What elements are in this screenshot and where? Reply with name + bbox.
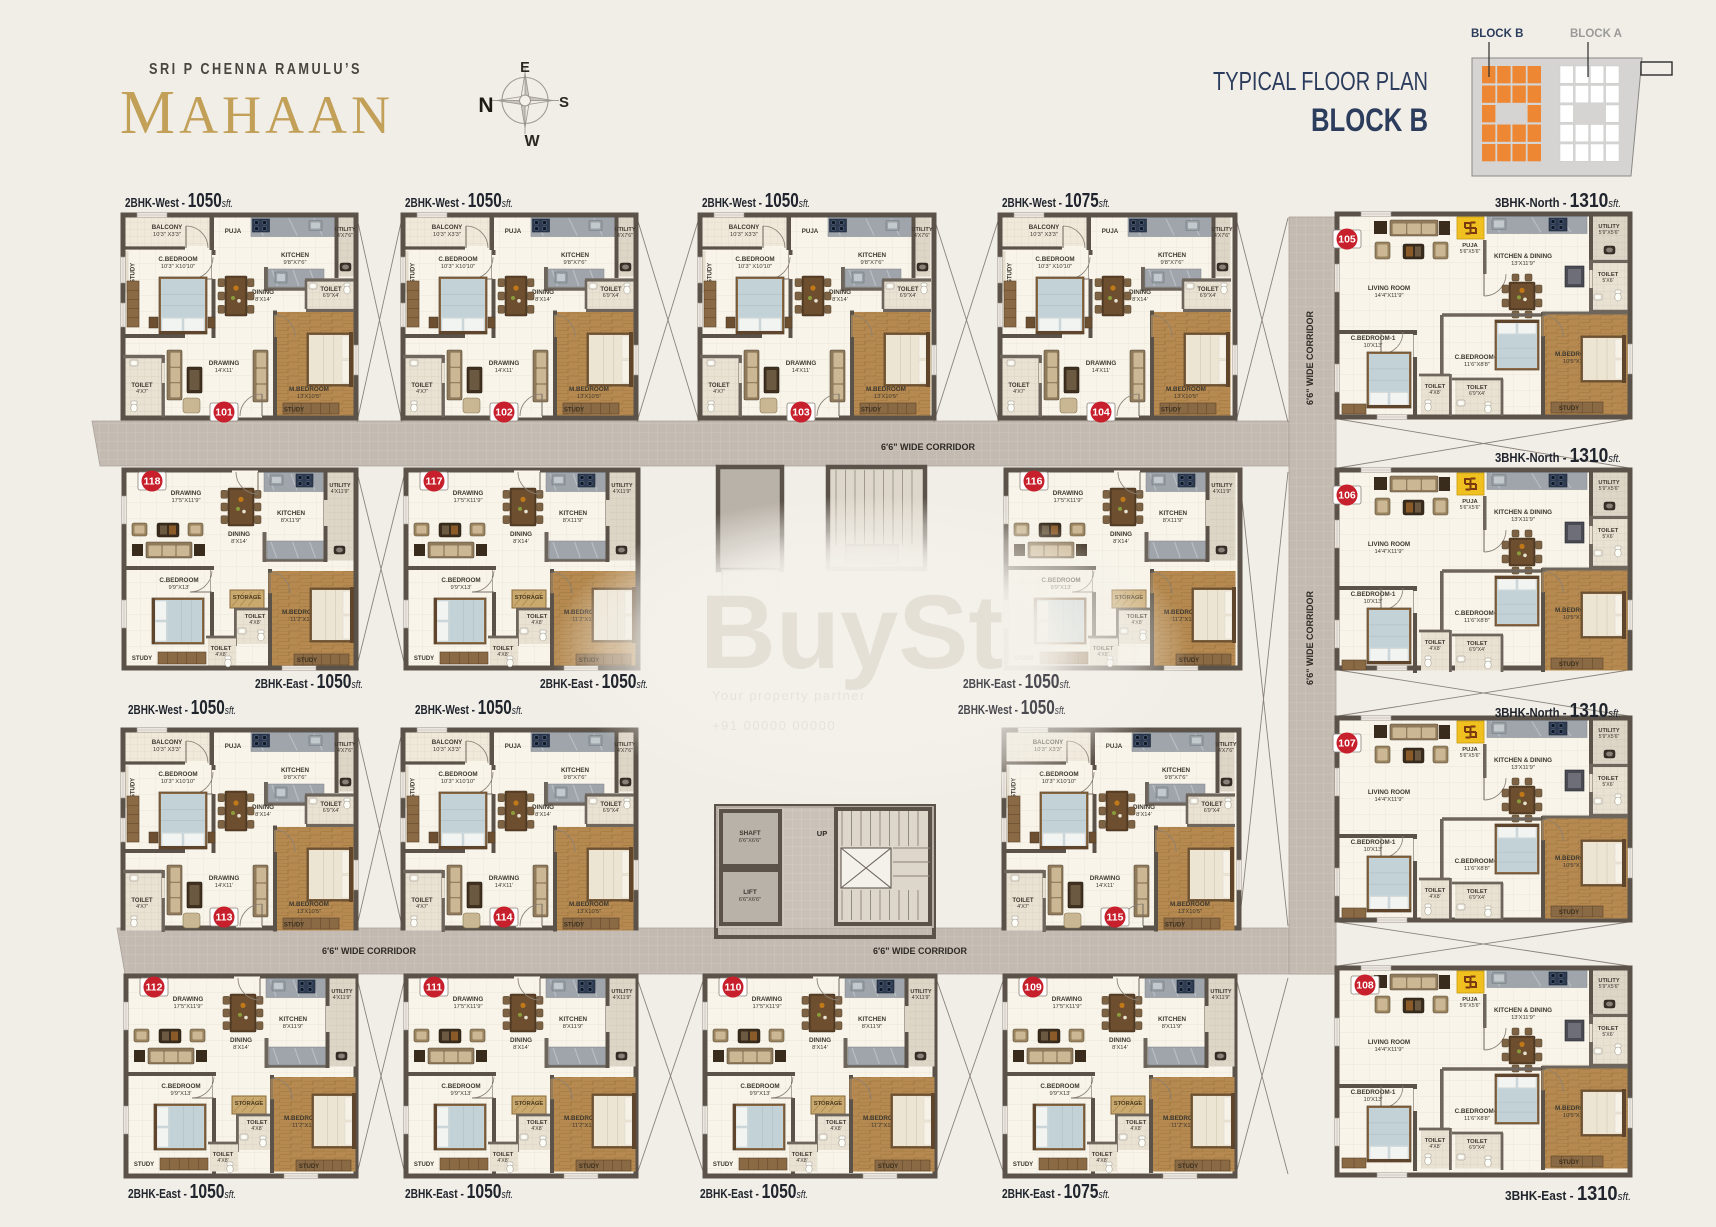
svg-text:4'X8': 4'X8' xyxy=(830,1126,841,1132)
svg-text:4'X7': 4'X7' xyxy=(136,389,148,395)
svg-text:6′6"X6′6": 6′6"X6′6" xyxy=(739,838,761,844)
svg-text:BLOCK B: BLOCK B xyxy=(1311,102,1428,138)
svg-text:8'X11'9": 8'X11'9" xyxy=(563,1024,584,1030)
svg-text:4'X7': 4'X7' xyxy=(1017,904,1029,910)
svg-text:C.BEDROOM-2: C.BEDROOM-2 xyxy=(1455,1108,1500,1115)
svg-text:STUDY: STUDY xyxy=(1559,662,1579,668)
svg-text:STUDY: STUDY xyxy=(131,263,137,283)
svg-text:DRAWING: DRAWING xyxy=(173,996,204,1003)
svg-text:109: 109 xyxy=(1024,982,1042,994)
svg-text:113: 113 xyxy=(216,912,233,924)
svg-text:KITCHEN & DINING: KITCHEN & DINING xyxy=(1494,1007,1552,1014)
svg-text:BALCONY: BALCONY xyxy=(432,224,463,231)
svg-text:C.BEDROOM-2: C.BEDROOM-2 xyxy=(1455,354,1500,361)
svg-text:PUJA: PUJA xyxy=(225,228,242,235)
svg-text:6'9"X4': 6'9"X4' xyxy=(323,293,340,299)
svg-text:S: S xyxy=(559,94,569,111)
svg-text:4'X8': 4'X8' xyxy=(1429,1144,1440,1150)
svg-text:KITCHEN: KITCHEN xyxy=(559,510,587,517)
svg-text:10'3" X3'3": 10'3" X3'3" xyxy=(433,232,461,238)
svg-text:SRI P CHENNA RAMULU’S: SRI P CHENNA RAMULU’S xyxy=(149,61,362,78)
svg-text:13'X11'9": 13'X11'9" xyxy=(1511,261,1535,267)
svg-text:14'X11': 14'X11' xyxy=(215,368,234,374)
svg-text:STUDY: STUDY xyxy=(131,778,137,798)
svg-text:DRAWING: DRAWING xyxy=(1090,875,1121,882)
svg-text:14'X11': 14'X11' xyxy=(215,883,234,889)
svg-text:9'9"X13': 9'9"X13' xyxy=(1049,1091,1070,1097)
svg-text:M.BEDROOM: M.BEDROOM xyxy=(866,386,906,393)
svg-text:4'X11'9": 4'X11'9" xyxy=(333,995,352,1001)
svg-text:STORAGE: STORAGE xyxy=(515,1101,544,1107)
svg-text:KITCHEN: KITCHEN xyxy=(281,767,309,774)
svg-text:C.BEDROOM-2: C.BEDROOM-2 xyxy=(1455,858,1500,865)
svg-text:DRAWING: DRAWING xyxy=(1052,996,1083,1003)
svg-text:PUJA: PUJA xyxy=(1102,228,1119,235)
svg-text:STUDY: STUDY xyxy=(411,263,417,283)
svg-text:KITCHEN: KITCHEN xyxy=(1159,510,1187,517)
svg-text:E: E xyxy=(520,60,530,76)
svg-text:STUDY: STUDY xyxy=(861,408,881,414)
svg-text:6'9"X4': 6'9"X4' xyxy=(603,808,620,814)
svg-text:4'X8': 4'X8' xyxy=(251,1126,262,1132)
svg-text:PUJA: PUJA xyxy=(505,743,522,750)
svg-text:117: 117 xyxy=(426,476,443,488)
svg-text:STUDY: STUDY xyxy=(284,408,304,414)
svg-text:C.BEDROOM-1: C.BEDROOM-1 xyxy=(1351,839,1396,846)
svg-text:8'X11'9": 8'X11'9" xyxy=(281,518,302,524)
svg-text:KITCHEN: KITCHEN xyxy=(561,767,589,774)
svg-text:C.BEDROOM-1: C.BEDROOM-1 xyxy=(1351,591,1396,598)
svg-text:STUDY: STUDY xyxy=(1559,1160,1579,1166)
svg-text:DRAWING: DRAWING xyxy=(453,996,484,1003)
svg-text:8'X11'9": 8'X11'9" xyxy=(283,1024,304,1030)
svg-text:4'X7'6": 4'X7'6" xyxy=(1218,748,1234,754)
svg-text:STUDY: STUDY xyxy=(132,656,152,662)
svg-text:MAHAAN: MAHAAN xyxy=(120,79,394,147)
svg-text:4'X8': 4'X8' xyxy=(1429,894,1440,900)
svg-text:SHAFT: SHAFT xyxy=(739,830,760,837)
svg-text:DRAWING: DRAWING xyxy=(1053,490,1084,497)
svg-text:8'X14': 8'X14' xyxy=(812,1045,828,1051)
svg-text:DINING: DINING xyxy=(252,289,274,296)
svg-text:5'X6': 5'X6' xyxy=(1602,1032,1613,1038)
svg-text:8'X14': 8'X14' xyxy=(1113,539,1129,545)
svg-text:DRAWING: DRAWING xyxy=(209,360,240,367)
svg-text:14'X11': 14'X11' xyxy=(1096,883,1115,889)
svg-text:4'X7'6": 4'X7'6" xyxy=(914,233,930,239)
svg-text:14'4"X11'9": 14'4"X11'9" xyxy=(1374,797,1403,803)
svg-text:115: 115 xyxy=(1107,912,1124,924)
svg-text:17'5"X11'9": 17'5"X11'9" xyxy=(453,1004,482,1010)
svg-text:8'X14': 8'X14' xyxy=(233,1045,249,1051)
svg-text:17'5"X11'9": 17'5"X11'9" xyxy=(173,1004,202,1010)
svg-text:6'9"X4': 6'9"X4' xyxy=(1200,293,1217,299)
svg-text:4'X7'6": 4'X7'6" xyxy=(337,233,353,239)
svg-text:13'X10'5": 13'X10'5" xyxy=(577,394,601,400)
svg-text:M.BEDROOM: M.BEDROOM xyxy=(569,901,609,908)
svg-text:112: 112 xyxy=(146,982,163,994)
svg-text:DINING: DINING xyxy=(1109,1037,1131,1044)
svg-text:BALCONY: BALCONY xyxy=(152,224,183,231)
svg-text:C.BEDROOM: C.BEDROOM xyxy=(158,256,197,263)
svg-text:13'X11'9": 13'X11'9" xyxy=(1511,1015,1535,1021)
svg-text:STUDY: STUDY xyxy=(134,1162,154,1168)
svg-text:DINING: DINING xyxy=(809,1037,831,1044)
svg-text:9'8"X7'6": 9'8"X7'6" xyxy=(563,260,586,266)
svg-text:9'8"X7'6": 9'8"X7'6" xyxy=(283,260,306,266)
svg-text:10'3" X10'10": 10'3" X10'10" xyxy=(1042,779,1076,785)
svg-text:6′6" WIDE CORRIDOR: 6′6" WIDE CORRIDOR xyxy=(873,946,967,956)
svg-text:LIVING ROOM: LIVING ROOM xyxy=(1368,1039,1410,1046)
svg-text:M.BEDROOM: M.BEDROOM xyxy=(289,901,329,908)
svg-text:17'5"X11'9": 17'5"X11'9" xyxy=(752,1004,781,1010)
svg-text:C.BEDROOM: C.BEDROOM xyxy=(735,256,774,263)
svg-text:9'8"X7'6": 9'8"X7'6" xyxy=(1160,260,1183,266)
svg-text:13'X10'5": 13'X10'5" xyxy=(874,394,898,400)
svg-text:4'X11'9": 4'X11'9" xyxy=(912,995,931,1001)
svg-text:DINING: DINING xyxy=(1110,531,1132,538)
svg-text:STUDY: STUDY xyxy=(1161,408,1181,414)
svg-text:4'X7': 4'X7' xyxy=(713,389,725,395)
svg-text:10'3" X3'3": 10'3" X3'3" xyxy=(730,232,758,238)
svg-text:10'3" X3'3": 10'3" X3'3" xyxy=(153,747,181,753)
svg-text:STUDY: STUDY xyxy=(1008,263,1014,283)
svg-text:5'9"X5'6": 5'9"X5'6" xyxy=(1599,230,1620,236)
svg-text:14'X11': 14'X11' xyxy=(495,368,514,374)
svg-text:106: 106 xyxy=(1338,490,1356,502)
svg-text:5'X6': 5'X6' xyxy=(1602,782,1613,788)
svg-text:14'X11': 14'X11' xyxy=(495,883,514,889)
svg-text:M.BEDROOM: M.BEDROOM xyxy=(1166,386,1206,393)
svg-text:11'6"X8'8": 11'6"X8'8" xyxy=(1464,618,1490,624)
svg-text:STUDY: STUDY xyxy=(708,263,714,283)
svg-text:DRAWING: DRAWING xyxy=(752,996,783,1003)
svg-text:4'X11'9": 4'X11'9" xyxy=(613,489,632,495)
svg-text:4'X8': 4'X8' xyxy=(1130,1126,1141,1132)
svg-text:KITCHEN: KITCHEN xyxy=(277,510,305,517)
svg-text:BALCONY: BALCONY xyxy=(1029,224,1060,231)
svg-text:8'X14': 8'X14' xyxy=(535,297,551,303)
svg-text:LIVING ROOM: LIVING ROOM xyxy=(1368,541,1410,548)
svg-text:14'4"X11'9": 14'4"X11'9" xyxy=(1374,549,1403,555)
svg-text:DINING: DINING xyxy=(252,804,274,811)
svg-text:STUDY: STUDY xyxy=(564,923,584,929)
svg-text:STUDY: STUDY xyxy=(414,1162,434,1168)
svg-text:114: 114 xyxy=(496,912,513,924)
svg-text:KITCHEN: KITCHEN xyxy=(281,252,309,259)
svg-text:111: 111 xyxy=(426,982,443,994)
svg-text:STORAGE: STORAGE xyxy=(1114,1101,1143,1107)
svg-text:M.BEDROOM: M.BEDROOM xyxy=(1170,901,1210,908)
svg-text:C.BEDROOM: C.BEDROOM xyxy=(441,577,480,584)
svg-text:9'8"X7'6": 9'8"X7'6" xyxy=(1164,775,1187,781)
svg-text:C.BEDROOM-2: C.BEDROOM-2 xyxy=(1455,610,1500,617)
svg-text:4'X7': 4'X7' xyxy=(416,389,428,395)
svg-text:9'9"X13': 9'9"X13' xyxy=(168,585,189,591)
svg-text:9'8"X7'6": 9'8"X7'6" xyxy=(860,260,883,266)
svg-text:6′6" WIDE CORRIDOR: 6′6" WIDE CORRIDOR xyxy=(322,946,416,956)
svg-text:8'X14': 8'X14' xyxy=(535,812,551,818)
svg-text:4'X11'9": 4'X11'9" xyxy=(613,995,632,1001)
svg-text:8'X14': 8'X14' xyxy=(513,539,529,545)
svg-text:108: 108 xyxy=(1356,980,1374,992)
svg-text:105: 105 xyxy=(1338,234,1356,246)
svg-text:KITCHEN: KITCHEN xyxy=(559,1016,587,1023)
svg-text:10'3" X10'10": 10'3" X10'10" xyxy=(738,264,772,270)
svg-text:9'9"X13': 9'9"X13' xyxy=(450,1091,471,1097)
svg-text:STORAGE: STORAGE xyxy=(515,595,544,601)
svg-text:STUDY: STUDY xyxy=(713,1162,733,1168)
svg-text:4'X7': 4'X7' xyxy=(136,904,148,910)
svg-text:STUDY: STUDY xyxy=(579,1164,599,1170)
svg-text:PUJA: PUJA xyxy=(225,743,242,750)
svg-text:STUDY: STUDY xyxy=(1013,1162,1033,1168)
svg-text:STUDY: STUDY xyxy=(1165,923,1185,929)
svg-text:8'X11'9": 8'X11'9" xyxy=(1163,518,1184,524)
svg-text:BALCONY: BALCONY xyxy=(729,224,760,231)
svg-text:KITCHEN: KITCHEN xyxy=(561,252,589,259)
svg-text:4'X8': 4'X8' xyxy=(531,1126,542,1132)
svg-text:102: 102 xyxy=(495,407,513,419)
svg-text:C.BEDROOM: C.BEDROOM xyxy=(1035,256,1074,263)
svg-text:10'3" X10'10": 10'3" X10'10" xyxy=(161,779,195,785)
svg-text:4'X11'9": 4'X11'9" xyxy=(1212,995,1231,1001)
svg-text:5'X6': 5'X6' xyxy=(1602,534,1613,540)
svg-text:14'4"X11'9": 14'4"X11'9" xyxy=(1374,293,1403,299)
svg-text:N: N xyxy=(478,94,493,117)
svg-text:C.BEDROOM: C.BEDROOM xyxy=(438,771,477,778)
svg-text:9'9"X13': 9'9"X13' xyxy=(170,1091,191,1097)
svg-text:13'X10'5": 13'X10'5" xyxy=(1174,394,1198,400)
svg-text:LIFT: LIFT xyxy=(743,889,757,896)
svg-text:8'X14': 8'X14' xyxy=(1136,812,1152,818)
svg-text:6'9"X4': 6'9"X4' xyxy=(1469,391,1485,397)
svg-text:4'X7'6": 4'X7'6" xyxy=(337,748,353,754)
svg-text:5'6"X5'6": 5'6"X5'6" xyxy=(1460,505,1481,511)
svg-text:10'3" X3'3": 10'3" X3'3" xyxy=(433,747,461,753)
svg-text:118: 118 xyxy=(144,476,161,488)
svg-text:Your property partner: Your property partner xyxy=(712,688,866,703)
svg-text:8'X14': 8'X14' xyxy=(1132,297,1148,303)
svg-text:6′6" WIDE CORRIDOR: 6′6" WIDE CORRIDOR xyxy=(1305,311,1315,405)
svg-text:4'X7': 4'X7' xyxy=(416,904,428,910)
svg-text:17'5"X11'9": 17'5"X11'9" xyxy=(171,498,200,504)
svg-text:STORAGE: STORAGE xyxy=(814,1101,843,1107)
svg-text:DRAWING: DRAWING xyxy=(489,875,520,882)
svg-text:11'6"X8'8": 11'6"X8'8" xyxy=(1464,1116,1490,1122)
svg-text:14'X11': 14'X11' xyxy=(792,368,811,374)
svg-text:103: 103 xyxy=(792,407,810,419)
svg-text:13'X11'9": 13'X11'9" xyxy=(1511,517,1535,523)
svg-text:10'X13': 10'X13' xyxy=(1364,847,1383,853)
svg-text:PUJA: PUJA xyxy=(802,228,819,235)
svg-text:5'6"X5'6": 5'6"X5'6" xyxy=(1460,753,1481,759)
svg-text:DINING: DINING xyxy=(1133,804,1155,811)
svg-text:10'3" X3'3": 10'3" X3'3" xyxy=(153,232,181,238)
svg-text:17'5"X11'9": 17'5"X11'9" xyxy=(1053,498,1082,504)
svg-text:KITCHEN: KITCHEN xyxy=(858,252,886,259)
svg-text:8'X14': 8'X14' xyxy=(1112,1045,1128,1051)
svg-text:101: 101 xyxy=(215,407,233,419)
svg-text:8'X14': 8'X14' xyxy=(832,297,848,303)
svg-text:KITCHEN & DINING: KITCHEN & DINING xyxy=(1494,253,1552,260)
svg-text:M.BEDROOM: M.BEDROOM xyxy=(289,386,329,393)
svg-text:LIVING ROOM: LIVING ROOM xyxy=(1368,285,1410,292)
svg-text:C.BEDROOM: C.BEDROOM xyxy=(740,1083,779,1090)
svg-text:DRAWING: DRAWING xyxy=(453,490,484,497)
svg-text:104: 104 xyxy=(1092,407,1110,419)
svg-text:BALCONY: BALCONY xyxy=(152,739,183,746)
svg-text:10'X13': 10'X13' xyxy=(1364,343,1383,349)
svg-text:STUDY: STUDY xyxy=(297,658,317,664)
svg-text:DRAWING: DRAWING xyxy=(209,875,240,882)
svg-text:C.BEDROOM: C.BEDROOM xyxy=(159,577,198,584)
svg-text:STUDY: STUDY xyxy=(414,656,434,662)
svg-text:6'9"X4': 6'9"X4' xyxy=(900,293,917,299)
svg-text:10'3" X10'10": 10'3" X10'10" xyxy=(1038,264,1072,270)
svg-text:W: W xyxy=(524,133,540,150)
svg-text:STUDY: STUDY xyxy=(564,408,584,414)
svg-text:STUDY: STUDY xyxy=(284,923,304,929)
svg-text:8'X11'9": 8'X11'9" xyxy=(1162,1024,1183,1030)
svg-text:4'X8': 4'X8' xyxy=(531,620,542,626)
svg-text:C.BEDROOM: C.BEDROOM xyxy=(161,1083,200,1090)
svg-text:4'X8': 4'X8' xyxy=(1429,646,1440,652)
svg-text:DINING: DINING xyxy=(228,531,250,538)
svg-text:4'X8': 4'X8' xyxy=(249,620,260,626)
svg-text:5'9"X5'6": 5'9"X5'6" xyxy=(1599,984,1620,990)
svg-text:KITCHEN: KITCHEN xyxy=(279,1016,307,1023)
svg-text:10'3" X10'10": 10'3" X10'10" xyxy=(441,264,475,270)
svg-text:9'8"X7'6": 9'8"X7'6" xyxy=(283,775,306,781)
svg-text:8'X11'9": 8'X11'9" xyxy=(563,518,584,524)
svg-text:13'X11'9": 13'X11'9" xyxy=(1511,765,1535,771)
svg-text:DINING: DINING xyxy=(829,289,851,296)
svg-text:4'X8': 4'X8' xyxy=(1429,390,1440,396)
svg-text:DINING: DINING xyxy=(1129,289,1151,296)
svg-text:10'3" X10'10": 10'3" X10'10" xyxy=(441,779,475,785)
svg-text:5'9"X5'6": 5'9"X5'6" xyxy=(1599,734,1620,740)
svg-text:DRAWING: DRAWING xyxy=(786,360,817,367)
svg-text:6'9"X4': 6'9"X4' xyxy=(1204,808,1221,814)
svg-text:C.BEDROOM: C.BEDROOM xyxy=(438,256,477,263)
svg-text:KITCHEN: KITCHEN xyxy=(1158,252,1186,259)
svg-text:DRAWING: DRAWING xyxy=(171,490,202,497)
svg-text:STUDY: STUDY xyxy=(878,1164,898,1170)
svg-text:6'9"X4': 6'9"X4' xyxy=(1469,647,1485,653)
svg-text:KITCHEN: KITCHEN xyxy=(1162,767,1190,774)
svg-text:8'X14': 8'X14' xyxy=(255,297,271,303)
svg-text:BuySt: BuySt xyxy=(700,574,1003,691)
svg-text:11'6"X8'8": 11'6"X8'8" xyxy=(1464,866,1490,872)
svg-text:C.BEDROOM-1: C.BEDROOM-1 xyxy=(1351,335,1396,342)
svg-text:10'3" X10'10": 10'3" X10'10" xyxy=(161,264,195,270)
svg-text:STUDY: STUDY xyxy=(1559,910,1579,916)
svg-text:TYPICAL FLOOR PLAN: TYPICAL FLOOR PLAN xyxy=(1213,68,1428,96)
svg-text:13'X10'5": 13'X10'5" xyxy=(1178,909,1202,915)
svg-text:8'X11'9": 8'X11'9" xyxy=(862,1024,883,1030)
svg-text:4'X7': 4'X7' xyxy=(1013,389,1025,395)
svg-text:4'X11'9": 4'X11'9" xyxy=(1213,489,1232,495)
svg-text:5'X6': 5'X6' xyxy=(1602,278,1613,284)
svg-text:4'X7'6": 4'X7'6" xyxy=(617,233,633,239)
svg-text:KITCHEN: KITCHEN xyxy=(858,1016,886,1023)
svg-text:13'X10'5": 13'X10'5" xyxy=(297,909,321,915)
svg-text:13'X10'5": 13'X10'5" xyxy=(297,394,321,400)
svg-text:STORAGE: STORAGE xyxy=(235,1101,264,1107)
svg-text:+91 00000 00000: +91 00000 00000 xyxy=(712,718,836,733)
svg-text:6′6" WIDE CORRIDOR: 6′6" WIDE CORRIDOR xyxy=(1305,591,1315,685)
svg-text:LIVING ROOM: LIVING ROOM xyxy=(1368,789,1410,796)
svg-text:17'5"X11'9": 17'5"X11'9" xyxy=(453,498,482,504)
svg-text:9'9"X13': 9'9"X13' xyxy=(450,585,471,591)
svg-text:STUDY: STUDY xyxy=(299,1164,319,1170)
svg-text:107: 107 xyxy=(1338,738,1356,750)
svg-text:4'X11'9": 4'X11'9" xyxy=(331,489,350,495)
svg-text:M.BEDROOM: M.BEDROOM xyxy=(569,386,609,393)
svg-text:DINING: DINING xyxy=(510,531,532,538)
svg-text:17'5"X11'9": 17'5"X11'9" xyxy=(1052,1004,1081,1010)
svg-text:KITCHEN & DINING: KITCHEN & DINING xyxy=(1494,757,1552,764)
svg-text:PUJA: PUJA xyxy=(505,228,522,235)
svg-text:5'6"X5'6": 5'6"X5'6" xyxy=(1460,249,1481,255)
svg-text:6'9"X4': 6'9"X4' xyxy=(1469,1145,1485,1151)
svg-text:DRAWING: DRAWING xyxy=(489,360,520,367)
svg-text:6'9"X4': 6'9"X4' xyxy=(323,808,340,814)
svg-text:4'X7'6": 4'X7'6" xyxy=(1214,233,1230,239)
svg-text:6′6"X6′6": 6′6"X6′6" xyxy=(739,897,761,903)
svg-text:STUDY: STUDY xyxy=(411,778,417,798)
svg-text:C.BEDROOM: C.BEDROOM xyxy=(441,1083,480,1090)
svg-text:10'3" X3'3": 10'3" X3'3" xyxy=(1030,232,1058,238)
svg-text:10'X13': 10'X13' xyxy=(1364,599,1383,605)
svg-text:BLOCK A: BLOCK A xyxy=(1570,28,1622,40)
svg-text:DINING: DINING xyxy=(532,289,554,296)
svg-text:KITCHEN: KITCHEN xyxy=(1158,1016,1186,1023)
svg-text:KITCHEN & DINING: KITCHEN & DINING xyxy=(1494,509,1552,516)
svg-text:11'6"X8'8": 11'6"X8'8" xyxy=(1464,362,1490,368)
svg-text:14'4"X11'9": 14'4"X11'9" xyxy=(1374,1047,1403,1053)
svg-text:5'6"X5'6": 5'6"X5'6" xyxy=(1460,1003,1481,1009)
svg-text:6′6" WIDE CORRIDOR: 6′6" WIDE CORRIDOR xyxy=(881,442,975,452)
svg-text:BLOCK B: BLOCK B xyxy=(1471,28,1523,40)
svg-text:DINING: DINING xyxy=(532,804,554,811)
svg-text:STUDY: STUDY xyxy=(1559,406,1579,412)
svg-text:6'9"X4': 6'9"X4' xyxy=(603,293,620,299)
svg-text:9'9"X13': 9'9"X13' xyxy=(749,1091,770,1097)
svg-text:9'8"X7'6": 9'8"X7'6" xyxy=(563,775,586,781)
svg-text:C.BEDROOM: C.BEDROOM xyxy=(158,771,197,778)
svg-text:DRAWING: DRAWING xyxy=(1086,360,1117,367)
svg-text:8'X14': 8'X14' xyxy=(513,1045,529,1051)
svg-text:8'X14': 8'X14' xyxy=(231,539,247,545)
svg-text:14'X11': 14'X11' xyxy=(1092,368,1111,374)
svg-text:UP: UP xyxy=(817,829,827,838)
svg-text:110: 110 xyxy=(725,982,742,994)
svg-text:C.BEDROOM: C.BEDROOM xyxy=(1040,1083,1079,1090)
svg-text:13'X10'5": 13'X10'5" xyxy=(577,909,601,915)
svg-text:BALCONY: BALCONY xyxy=(432,739,463,746)
svg-text:STUDY: STUDY xyxy=(1178,1164,1198,1170)
svg-text:5'9"X5'6": 5'9"X5'6" xyxy=(1599,486,1620,492)
svg-text:116: 116 xyxy=(1026,476,1043,488)
svg-text:10'X13': 10'X13' xyxy=(1364,1097,1383,1103)
svg-text:DINING: DINING xyxy=(510,1037,532,1044)
svg-text:DINING: DINING xyxy=(230,1037,252,1044)
svg-text:8'X14': 8'X14' xyxy=(255,812,271,818)
svg-text:STORAGE: STORAGE xyxy=(233,595,262,601)
svg-text:C.BEDROOM-1: C.BEDROOM-1 xyxy=(1351,1089,1396,1096)
